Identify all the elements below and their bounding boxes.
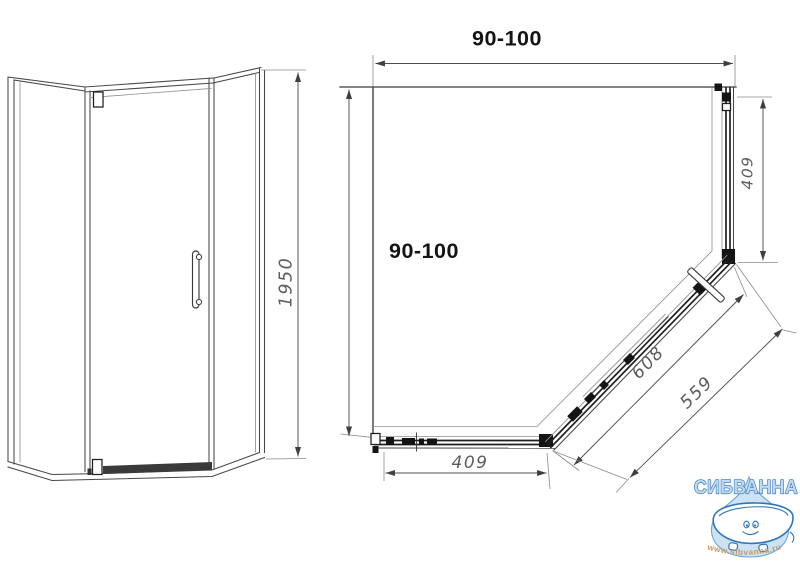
watermark-logo: СИБВАННА www.sibvanna.ru: [694, 477, 798, 558]
plan-side-fixed-panel: [715, 84, 736, 265]
door-hinge-top: [94, 92, 104, 107]
plan-door-handle: [687, 267, 725, 303]
plan-diagonal-door: [546, 255, 736, 450]
front-panel-dimension-409: 409: [384, 452, 550, 489]
plan-width-label: 90-100: [472, 27, 542, 51]
plan-front-fixed-panel: [371, 433, 555, 454]
front-panel-label: 409: [452, 453, 489, 473]
door-glass-label: 608: [628, 342, 669, 383]
front-glass-panels: [8, 68, 265, 472]
door-opening-dimension-559: 559: [555, 265, 797, 493]
width-dimension-top: 90-100: [373, 27, 735, 87]
side-panel-dimension-409: 409: [737, 97, 778, 263]
door-handle: [193, 251, 202, 308]
height-dimension-1950: 1950: [261, 70, 306, 459]
front-height-label: 1950: [277, 257, 297, 308]
brand-logo-text: СИБВАННА: [694, 477, 798, 499]
plan-walls-and-tray: [340, 87, 736, 441]
depth-dimension-left: 90-100: [349, 90, 459, 437]
front-tray: [8, 453, 265, 481]
front-elevation-view: 1950: [8, 68, 306, 481]
side-panel-label: 409: [739, 155, 757, 189]
door-opening-label: 559: [676, 373, 717, 414]
plan-depth-label: 90-100: [389, 239, 459, 263]
plan-view: 90-100 90-100 409 409 608 559: [340, 27, 797, 493]
shower-enclosure-dimension-drawing: 1950: [0, 0, 800, 564]
